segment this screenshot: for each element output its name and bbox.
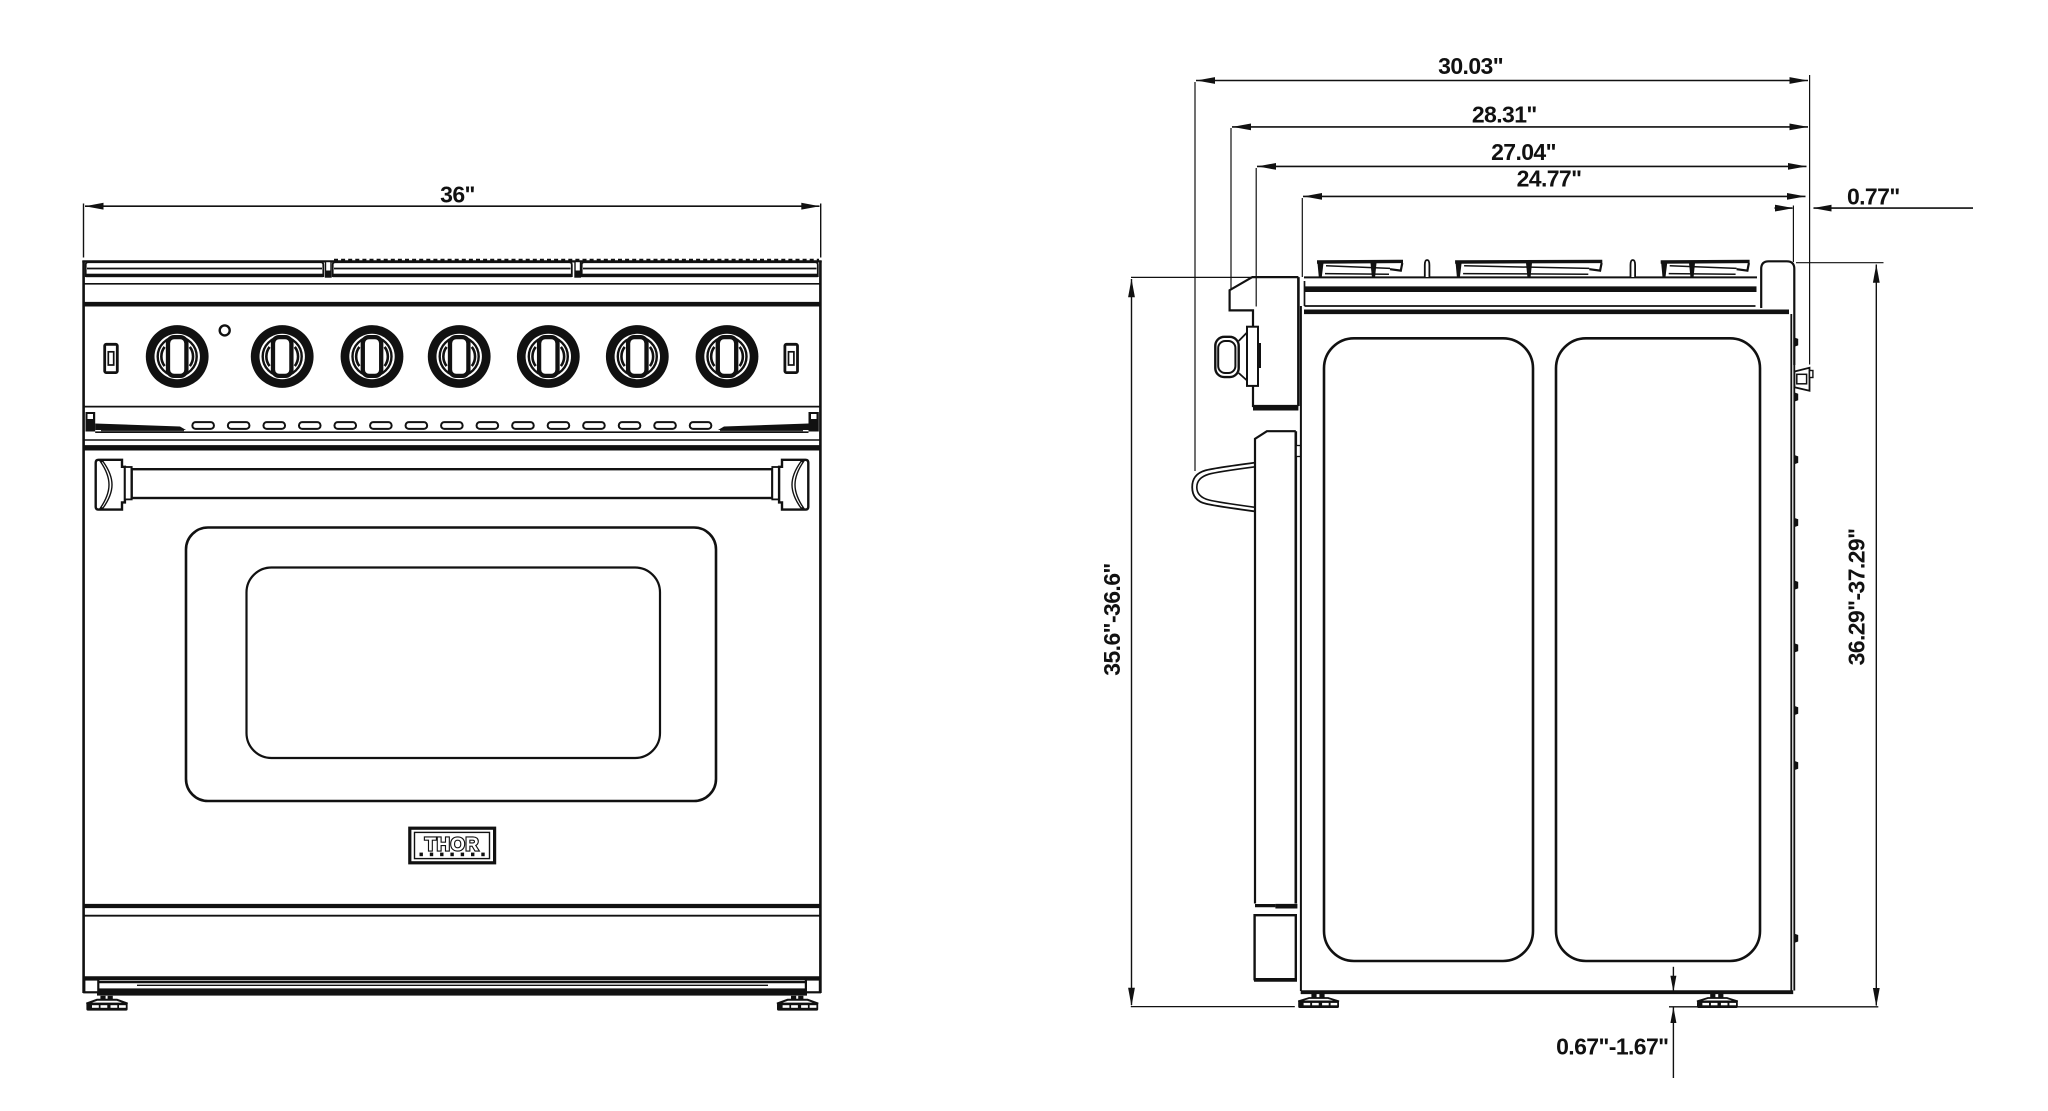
svg-text:36.29"-37.29": 36.29"-37.29" xyxy=(1844,529,1870,666)
svg-text:30.03": 30.03" xyxy=(1438,53,1503,79)
svg-text:28.31": 28.31" xyxy=(1472,102,1537,128)
svg-text:0.77": 0.77" xyxy=(1847,184,1900,210)
svg-text:36": 36" xyxy=(440,182,475,208)
svg-text:THOR: THOR xyxy=(425,834,479,855)
svg-text:35.6"-36.6": 35.6"-36.6" xyxy=(1099,563,1125,675)
svg-text:0.67"-1.67": 0.67"-1.67" xyxy=(1556,1034,1668,1060)
svg-text:27.04": 27.04" xyxy=(1491,139,1556,165)
svg-text:24.77": 24.77" xyxy=(1517,166,1582,192)
